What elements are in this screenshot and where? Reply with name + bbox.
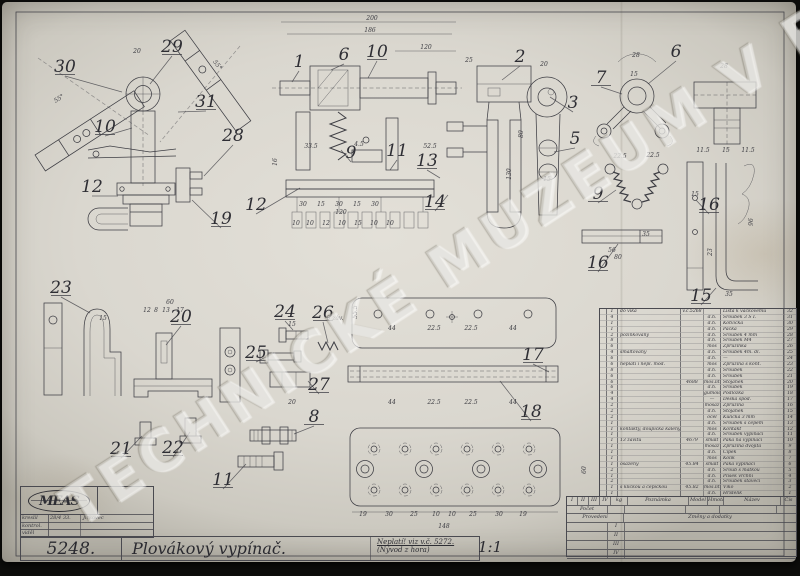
- dimension-label: 15: [354, 220, 362, 227]
- drawing-title: Plovákový vypínač.: [122, 537, 371, 560]
- dimension-label: 22.5: [645, 152, 660, 159]
- dimension-label: 96: [748, 218, 755, 226]
- dimension-label: 22.5: [426, 399, 441, 406]
- dimension-label: 15: [353, 201, 361, 208]
- revision-label: IV: [608, 550, 625, 558]
- dimension-label: 15: [317, 201, 325, 208]
- dimension-label: 22.5: [612, 153, 627, 160]
- part-callout: 24: [273, 302, 296, 322]
- part-callout: 29: [160, 37, 183, 57]
- dimension-label: 55.5: [352, 305, 359, 319]
- callout-leader: [292, 71, 299, 82]
- dimension-label: 22.5: [463, 399, 478, 406]
- nazev-header: Název: [724, 497, 781, 505]
- part-callout: 14: [424, 192, 446, 212]
- dimension-label: 186: [364, 27, 376, 34]
- provedeni-col-header: I: [567, 497, 578, 505]
- footer-cell: [608, 506, 625, 513]
- callout-leader: [323, 322, 328, 343]
- dimension-label: 16: [272, 158, 279, 166]
- part-callout: 16: [698, 195, 720, 215]
- part-callout: 2: [514, 47, 526, 67]
- callout-leader: [502, 66, 520, 80]
- dimension-label: 10: [432, 511, 440, 518]
- part-callout: 23: [49, 278, 72, 298]
- dimension-label: 28: [719, 63, 728, 70]
- dimension-label: 60: [581, 466, 588, 474]
- poznamka-header: Poznámka: [628, 497, 689, 505]
- view-lever: [447, 66, 567, 228]
- provedeni-col-header: II: [578, 497, 589, 505]
- dimension-label: 10: [370, 220, 378, 227]
- dimension-label: 148: [438, 523, 450, 530]
- part-callout: 5: [570, 129, 581, 149]
- dimension-label: 25: [464, 57, 473, 64]
- logo-cell: MEAS: [21, 487, 98, 515]
- revision-row: IV: [567, 550, 796, 559]
- callout-leader: [601, 87, 622, 94]
- part-callout: 3: [568, 93, 579, 113]
- dimension-label: 25: [468, 511, 477, 518]
- dimension-label: 12: [143, 307, 151, 314]
- parts-table: 1do víkav.č.5268Lišta k vačkovému324d.h.…: [599, 308, 797, 497]
- callout-leader: [427, 170, 440, 178]
- dimension-label: 15: [543, 176, 551, 183]
- part-callout: 11: [386, 141, 408, 161]
- dimension-label: 8: [154, 307, 158, 314]
- cis-header: Čís: [781, 497, 796, 505]
- title-block: 5248. Plovákový vypínač. Neplatí! viz v.…: [20, 536, 480, 561]
- dimension-label: 60: [166, 299, 174, 306]
- callout-leader: [294, 426, 314, 434]
- part-callout: 9: [593, 184, 604, 204]
- part-callout: 19: [210, 209, 232, 229]
- part-callout: 30: [54, 57, 76, 77]
- dimension-label: 15: [722, 147, 730, 154]
- part-callout: 27: [307, 375, 330, 395]
- callout-leader: [390, 160, 397, 170]
- model-header: Model: [689, 497, 708, 505]
- part-callout: 1: [294, 52, 305, 72]
- dimension-label: 44: [387, 325, 396, 332]
- dimension-label: 23: [707, 248, 714, 257]
- revision-row: II: [567, 532, 796, 541]
- dimension-label: 10: [448, 511, 456, 518]
- revision-label: I: [608, 523, 625, 531]
- view-bar: [582, 230, 662, 243]
- dimension-label: 30: [335, 201, 343, 208]
- dimension-label: 19: [359, 511, 367, 518]
- dimension-label: 10: [338, 220, 346, 227]
- footer-cell: [567, 541, 608, 549]
- revision-label: II: [608, 532, 625, 540]
- dimension-label: 30: [371, 201, 379, 208]
- footer-cell: [625, 532, 796, 540]
- dimension-label: 120: [420, 44, 432, 51]
- dimension-label: 19: [519, 511, 527, 518]
- callout-leader: [65, 76, 122, 92]
- view-yoke: [594, 54, 756, 150]
- footer-cell: [777, 506, 796, 513]
- part-callout: 10: [94, 117, 116, 137]
- part-callout: 11: [212, 470, 234, 490]
- part-callout: 10: [366, 42, 388, 62]
- footer-cell: [567, 550, 608, 558]
- dimension-label: 15: [691, 191, 699, 198]
- zmeny-label: Změny a dodatky: [624, 514, 796, 522]
- dimension-label: 10: [306, 220, 314, 227]
- invalid-note: Neplatí! viz v.č. 5272. (Nývod z hora): [371, 537, 479, 560]
- part-callout: 6: [339, 45, 350, 65]
- dimension-label: 44: [508, 399, 517, 406]
- dimension-label: 20: [287, 399, 296, 406]
- dimension-label: 20: [132, 48, 141, 55]
- part-callout: 31: [195, 92, 217, 112]
- dimension-label: 25: [409, 511, 418, 518]
- dimension-label: 35: [725, 291, 733, 298]
- dimension-label: 10: [386, 220, 394, 227]
- footer-cell: [686, 506, 720, 513]
- part-callout: 21: [109, 439, 132, 459]
- dimension-label: 80: [614, 254, 622, 261]
- provedeni-label: Provedení: [567, 514, 624, 522]
- part-callout: 16: [587, 253, 609, 273]
- view-spring: [605, 164, 668, 209]
- provedeni-col-header: III: [589, 497, 600, 505]
- dimension-label: 30: [299, 201, 307, 208]
- callout-leader: [368, 61, 377, 78]
- dimension-label: 55°: [53, 93, 66, 105]
- callout-leader: [648, 61, 676, 84]
- dimension-label: 33.5: [304, 143, 318, 150]
- part-callout: 15: [690, 286, 712, 306]
- dimension-label: 22.5: [426, 325, 441, 332]
- footer-cell: [625, 506, 686, 513]
- dimension-label: 10: [292, 220, 300, 227]
- callout-leader: [166, 326, 181, 345]
- revision-row: III: [567, 541, 796, 550]
- footer-cell: [567, 532, 608, 540]
- meas-logo: MEAS: [28, 490, 90, 512]
- dimension-label: 17: [176, 307, 184, 314]
- dimension-label: 20: [539, 61, 548, 68]
- part-callout: 13: [416, 151, 438, 171]
- scale-value: 1:1: [478, 538, 502, 556]
- footer-table: I II III IV kg Poznámka Model Hmota Náze…: [566, 496, 797, 557]
- dimension-label: 11.5: [741, 147, 755, 154]
- hmota-header: Hmota: [708, 497, 724, 505]
- kg-header: kg: [611, 497, 628, 505]
- part-callout: 22: [161, 438, 184, 458]
- invalid-note-line2: (Nývod z hora): [377, 546, 479, 554]
- footer-cell: [625, 541, 796, 549]
- dimension-label: 6 záv.: [326, 315, 343, 322]
- drawing-number: 5248.: [21, 537, 122, 560]
- dimension-label: 120: [335, 209, 347, 216]
- part-callout: 7: [596, 68, 607, 88]
- dimension-label: 30: [495, 511, 503, 518]
- dimension-label: 11.5: [696, 147, 710, 154]
- dimension-label: 4.5: [353, 141, 364, 148]
- provedeni-col-header: IV: [600, 497, 611, 505]
- part-callout: 8: [309, 407, 320, 427]
- dimension-label: 200: [365, 15, 378, 22]
- dimension-label: 28: [631, 52, 640, 59]
- part-callout: 28: [221, 126, 244, 146]
- part-callout: 12: [245, 195, 267, 215]
- part-callout: 6: [671, 42, 682, 62]
- revision-row: I: [567, 523, 796, 532]
- dimension-label: 80: [518, 130, 525, 138]
- pocet-header: Počet: [567, 506, 608, 513]
- dimension-label: 130: [506, 168, 513, 180]
- dimension-label: 30: [385, 511, 393, 518]
- part-callout: 18: [520, 402, 542, 422]
- part-callout: 17: [522, 345, 544, 365]
- footer-cell: [720, 506, 777, 513]
- signature-block: MEAS kreslil 28/4 33. Jirkovec kontrol. …: [20, 486, 154, 538]
- dimension-label: 52.5: [423, 143, 437, 150]
- scanned-drawing-photo: 3029311028121912161091113142357691616152…: [0, 0, 800, 576]
- dimension-label: 15: [288, 321, 296, 328]
- dimension-label: 35: [642, 231, 650, 238]
- dimension-label: 44: [387, 399, 396, 406]
- revision-label: III: [608, 541, 625, 549]
- footer-cell: [625, 550, 796, 558]
- callout-leader: [204, 145, 233, 176]
- dimension-label: 12: [322, 220, 330, 227]
- dimension-label: 55°: [211, 59, 223, 72]
- part-callout: 12: [81, 177, 103, 197]
- callout-leader: [61, 297, 90, 313]
- footer-cell: [567, 523, 608, 531]
- dimension-label: 44: [508, 325, 517, 332]
- dimension-label: 13: [162, 307, 170, 314]
- dimension-label: 15: [630, 71, 638, 78]
- dimension-label: 56: [608, 247, 616, 254]
- dimension-label: 15: [99, 315, 107, 322]
- callout-leader: [150, 56, 172, 84]
- part-callout: 25: [244, 343, 267, 363]
- invalid-note-line1: Neplatí! viz v.č. 5272.: [377, 538, 479, 546]
- dimension-label: 22.5: [463, 325, 478, 332]
- footer-cell: [625, 523, 796, 531]
